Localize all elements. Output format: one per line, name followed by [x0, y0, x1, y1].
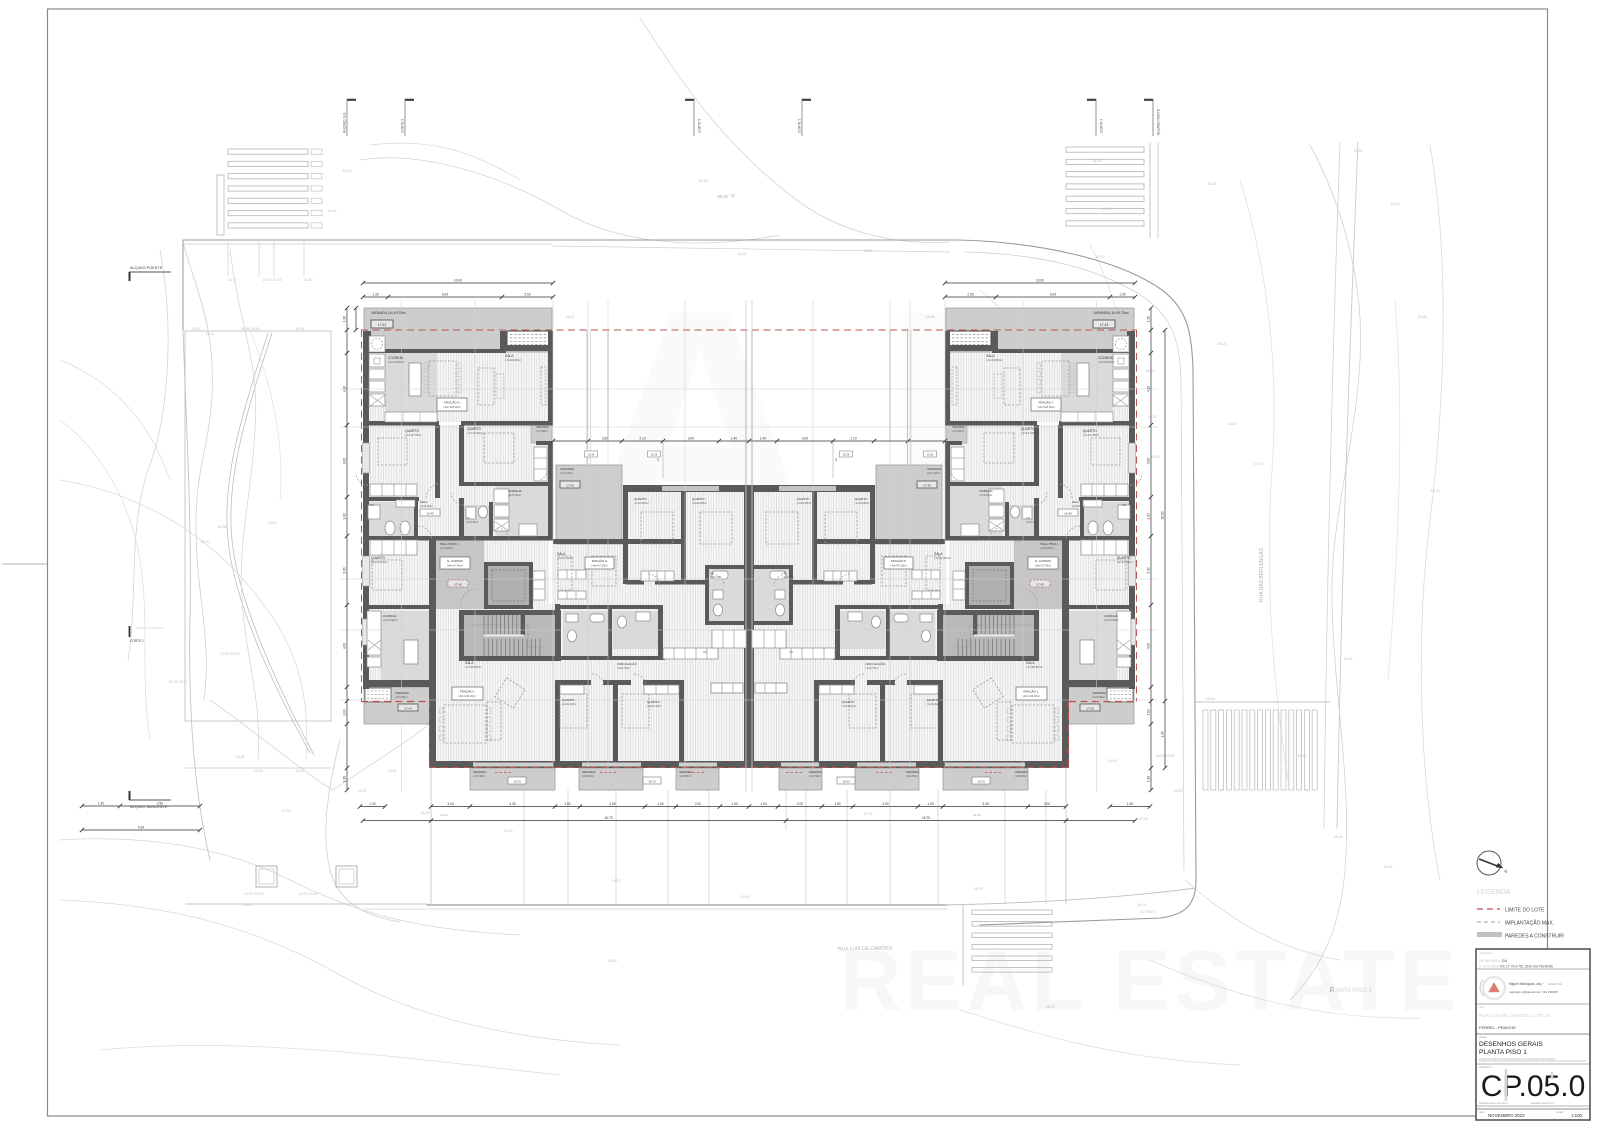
svg-text:18.77: 18.77 [228, 278, 237, 282]
svg-text:17.43: 17.43 [404, 707, 412, 711]
svg-text:19.36: 19.36 [254, 769, 263, 773]
svg-text:18.39: 18.39 [699, 179, 708, 183]
svg-text:18.70: 18.70 [304, 278, 313, 282]
svg-text:18141 OA: 18141 OA [1548, 982, 1563, 986]
svg-text:| Abr=27.96m²: | Abr=27.96m² [1035, 564, 1051, 568]
svg-text:μ9.74: μ9.74 [1137, 903, 1146, 907]
svg-text:18.14: 18.14 [1391, 202, 1400, 206]
svg-text:18.70: 18.70 [343, 169, 352, 173]
svg-text:| A=4.95m²: | A=4.95m² [582, 775, 594, 778]
svg-text:CP.05.0: CP.05.0 [1481, 1070, 1586, 1103]
svg-text:| A=6.95m²: | A=6.95m² [1092, 695, 1105, 699]
svg-text:2.50: 2.50 [524, 292, 530, 296]
svg-text:18.67: 18.67 [566, 315, 575, 319]
svg-text:2.50: 2.50 [967, 292, 973, 296]
svg-text:19.27 19.24: 19.27 19.24 [245, 892, 264, 896]
svg-text:FRAÇÃO J: FRAÇÃO J [1039, 400, 1054, 405]
svg-text:1.50: 1.50 [1127, 802, 1133, 806]
svg-text:| Abr=149.90m²: | Abr=149.90m² [1022, 694, 1040, 698]
svg-text:I.S.: I.S. [782, 571, 786, 575]
svg-text:CORTE 4: CORTE 4 [1100, 119, 1104, 133]
svg-text:19.19: 19.19 [1254, 462, 1263, 466]
svg-text:2.60: 2.60 [609, 802, 615, 806]
svg-text:18.76: 18.76 [974, 887, 983, 891]
svg-text:| A=6.95m²: | A=6.95m² [395, 695, 408, 699]
svg-text:| Abr=97.35m²: | Abr=97.35m² [591, 564, 607, 568]
svg-text:18.96 18.98: 18.96 18.98 [241, 327, 260, 331]
svg-text:REAL ESTATE: REAL ESTATE [840, 934, 1460, 1029]
svg-text:18.94: 18.94 [1384, 865, 1393, 869]
svg-text:18.30: 18.30 [1096, 255, 1105, 259]
svg-text:| A=20.05m²: | A=20.05m² [692, 501, 707, 505]
svg-text:CIRCULAÇÃO: CIRCULAÇÃO [617, 661, 637, 666]
svg-text:PAREDES A CONSTRUIR: PAREDES A CONSTRUIR [1505, 934, 1564, 940]
svg-text:QUARTO: QUARTO [842, 700, 855, 704]
svg-text:| A=3.30m²: | A=3.30m² [1026, 521, 1038, 524]
svg-text:1.30: 1.30 [98, 801, 104, 805]
svg-text:19.00: 19.00 [268, 521, 277, 525]
svg-text:1.30: 1.30 [1146, 776, 1150, 782]
svg-text:FRAÇÃO H: FRAÇÃO H [592, 558, 608, 563]
svg-text:18.20: 18.20 [1228, 422, 1237, 426]
svg-text:2.00: 2.00 [695, 802, 701, 806]
svg-text:18.56: 18.56 [1206, 697, 1215, 701]
svg-text:| A=24.90m²: | A=24.90m² [986, 358, 1002, 362]
svg-text:3.00: 3.00 [342, 458, 346, 464]
svg-text:CIRCULAÇÃO: CIRCULAÇÃO [865, 661, 885, 666]
svg-text:LEGENDA: LEGENDA [1477, 889, 1511, 896]
svg-text:1.40: 1.40 [760, 436, 766, 440]
svg-text:| Abr=27.96m²: | Abr=27.96m² [447, 564, 463, 568]
svg-text:QUARTO: QUARTO [634, 497, 647, 501]
svg-text:6.00: 6.00 [442, 292, 448, 296]
svg-text:5.30: 5.30 [138, 825, 144, 829]
svg-text:QUARTO: QUARTO [692, 497, 705, 501]
svg-text:| A=11.60m²: | A=11.60m² [562, 702, 576, 706]
svg-text:10.00: 10.00 [454, 278, 462, 282]
svg-text:17.43: 17.43 [1086, 707, 1094, 711]
svg-text:| A=12.10m²: | A=12.10m² [647, 704, 662, 708]
svg-text:16.75: 16.75 [605, 816, 613, 820]
svg-text:| A=24.90m²: | A=24.90m² [505, 358, 521, 362]
svg-text:LIMITE DO LOTE: LIMITE DO LOTE [1505, 908, 1545, 914]
svg-text:3.30: 3.30 [342, 567, 346, 573]
svg-text:18.44: 18.44 [1334, 835, 1343, 839]
svg-text:DA: DA [1502, 959, 1508, 963]
svg-text:VARANDA: VARANDA [582, 770, 595, 774]
svg-text:CORTE 3: CORTE 3 [798, 119, 802, 133]
svg-text:| A=9.00m²: | A=9.00m² [1040, 546, 1054, 550]
svg-text:3.60: 3.60 [602, 436, 608, 440]
svg-text:18.26: 18.26 [1151, 455, 1160, 459]
svg-text:18.36: 18.36 [1344, 657, 1353, 661]
svg-text:18.75 18.74: 18.75 18.74 [263, 278, 282, 282]
svg-text:| Abr=149.90m²: | Abr=149.90m² [458, 694, 476, 698]
svg-text:6.00: 6.00 [1050, 292, 1056, 296]
svg-text:18.88: 18.88 [926, 315, 935, 319]
svg-text:3.00: 3.00 [1146, 458, 1150, 464]
svg-text:E. COMUM: E. COMUM [1035, 559, 1051, 563]
svg-text:RUA DAS BERLENGAS: RUA DAS BERLENGAS [1259, 547, 1265, 602]
svg-text:VARANDA: VARANDA [809, 770, 822, 774]
svg-text:complementar o desenho nº: complementar o desenho nº [1479, 1101, 1509, 1105]
svg-text:3.00: 3.00 [688, 436, 694, 440]
svg-text:17.43: 17.43 [1100, 323, 1109, 327]
svg-text:3.00: 3.00 [1044, 802, 1050, 806]
svg-text:| A=5.95m²: | A=5.95m² [1015, 775, 1027, 778]
svg-text:obra: obra [1479, 1005, 1485, 1009]
svg-text:VARANDA: VARANDA [536, 425, 549, 429]
svg-text:18.55: 18.55 [1298, 754, 1307, 758]
svg-text:.99: .99 [834, 458, 838, 462]
svg-text:19.18: 19.18 [864, 812, 873, 816]
svg-text:3.35: 3.35 [509, 802, 515, 806]
svg-text:| A=3.55m²: | A=3.55m² [809, 775, 821, 778]
svg-text:1.10: 1.10 [342, 709, 346, 715]
svg-text:VARANDA | A=19.70m²: VARANDA | A=19.70m² [371, 311, 407, 315]
svg-text:18.03: 18.03 [1046, 1005, 1055, 1009]
svg-text:| A=9.75m²: | A=9.75m² [617, 666, 630, 670]
svg-text:| A=7.20m²: | A=7.20m² [560, 471, 573, 475]
svg-text:18.04: 18.04 [1208, 182, 1217, 186]
svg-text:1.50: 1.50 [834, 802, 840, 806]
svg-text:| Abr=126.90m²: | Abr=126.90m² [443, 405, 461, 409]
svg-text:1.30: 1.30 [1119, 292, 1125, 296]
svg-text:| Abr=97.35m²: | Abr=97.35m² [890, 564, 906, 568]
svg-text:2.50: 2.50 [157, 801, 163, 805]
svg-text:COZINHA: COZINHA [1104, 614, 1118, 618]
svg-text:| A=4.80m²: | A=4.80m² [536, 430, 548, 433]
svg-text:19.16: 19.16 [440, 813, 448, 817]
svg-text:RUA LUIS DE CAMÕES, LOTE 1A: RUA LUIS DE CAMÕES, LOTE 1A [1479, 1012, 1551, 1018]
svg-text:19.02: 19.02 [612, 879, 621, 883]
svg-text:19.39: 19.39 [388, 769, 397, 773]
svg-text:1.50: 1.50 [564, 802, 570, 806]
svg-text:18.28: 18.28 [927, 453, 934, 457]
svg-text:18.19: 18.19 [1093, 159, 1102, 163]
svg-text:ALÇADO POENTE: ALÇADO POENTE [130, 266, 163, 270]
svg-text:17.43: 17.43 [923, 484, 931, 488]
svg-text:1.50: 1.50 [657, 802, 663, 806]
svg-text:ALÇADO SUL: ALÇADO SUL [343, 112, 347, 133]
svg-text:1.30: 1.30 [1146, 316, 1150, 322]
svg-text:I.S.: I.S. [789, 650, 793, 654]
svg-text:| A=10.60m²: | A=10.60m² [1098, 360, 1114, 364]
svg-text:Miguel Malaquias, arq.º: Miguel Malaquias, arq.º [1509, 982, 1544, 986]
svg-text:18.32: 18.32 [296, 769, 305, 773]
svg-text:18.23: 18.23 [244, 903, 253, 907]
svg-text:HALL: HALL [1072, 500, 1080, 504]
svg-text:10.00: 10.00 [1160, 511, 1164, 519]
svg-text:QUARTO: QUARTO [855, 497, 868, 501]
svg-text:19.04: 19.04 [328, 209, 337, 213]
svg-text:| A=11.60m²: | A=11.60m² [927, 702, 941, 706]
svg-text:1.30: 1.30 [342, 316, 346, 322]
svg-text:18.45: 18.45 [1064, 512, 1072, 516]
svg-text:1.50: 1.50 [760, 802, 766, 806]
svg-text:18.28: 18.28 [651, 453, 658, 457]
svg-text:FRAÇÃO K: FRAÇÃO K [891, 558, 906, 563]
svg-text:I.S.: I.S. [703, 650, 707, 654]
svg-text:ALÇADO NASCENTE: ALÇADO NASCENTE [130, 805, 168, 809]
svg-text:1.50: 1.50 [731, 802, 737, 806]
svg-text:19.00: 19.00 [608, 959, 617, 963]
svg-text:1.30: 1.30 [1160, 731, 1164, 737]
svg-text:4.00: 4.00 [1146, 643, 1150, 649]
svg-text:COZINHA: COZINHA [383, 614, 397, 618]
svg-text:VARANDA: VARANDA [560, 467, 574, 471]
svg-text:19.26: 19.26 [282, 809, 291, 813]
svg-text:| A=6.60m²: | A=6.60m² [508, 493, 521, 497]
svg-text:| A=12.20m²: | A=12.20m² [467, 431, 483, 435]
svg-text:RUA LUIS DE CAMÕES: RUA LUIS DE CAMÕES [838, 945, 893, 953]
svg-text:18.20: 18.20 [1148, 415, 1157, 419]
svg-text:19.01: 19.01 [206, 332, 215, 336]
svg-text:| A=13.90m²: | A=13.90m² [1104, 618, 1119, 622]
svg-text:17.43: 17.43 [454, 583, 462, 587]
svg-text:FERREL - PENICHE: FERREL - PENICHE [1479, 1025, 1516, 1030]
svg-text:OS, LT 78 N.º50, 2520-202 PENI: OS, LT 78 N.º50, 2520-202 PENICHE [1500, 965, 1553, 969]
svg-text:18.53: 18.53 [864, 249, 873, 253]
svg-text:| A=12.10m²: | A=12.10m² [842, 704, 857, 708]
svg-text:18.45: 18.45 [426, 512, 434, 516]
svg-text:2.60: 2.60 [882, 802, 888, 806]
svg-text:escala: escala [1556, 1111, 1564, 1114]
svg-text:18.65: 18.65 [1108, 759, 1117, 763]
svg-text:18.87: 18.87 [1174, 789, 1183, 793]
svg-text:18.33: 18.33 [513, 780, 521, 784]
svg-text:3.00: 3.00 [447, 802, 453, 806]
svg-text:VARANDA: VARANDA [473, 770, 486, 774]
svg-text:FRAÇÃO G: FRAÇÃO G [444, 400, 460, 405]
svg-text:| A=20.05m²: | A=20.05m² [797, 501, 812, 505]
svg-text:COZINHA: COZINHA [979, 489, 993, 493]
svg-text:| A=4.70m²: | A=4.70m² [782, 576, 794, 579]
svg-text:data: data [1479, 1111, 1484, 1114]
svg-text:FRAÇÃO L: FRAÇÃO L [1023, 689, 1038, 694]
svg-text:HALL: HALL [420, 500, 428, 504]
svg-text:mgmarq.m@gmail.com | 91 2104: mgmarq.m@gmail.com | 91 210457 [1509, 990, 1558, 994]
svg-text:19.26 19.27: 19.26 19.27 [169, 680, 188, 684]
svg-text:| A=10.60m²: | A=10.60m² [388, 360, 404, 364]
svg-text:| A=3.55m²: | A=3.55m² [679, 775, 691, 778]
svg-text:VARANDA: VARANDA [1015, 770, 1028, 774]
svg-text:substitui o desenho nº: substitui o desenho nº [1531, 1101, 1555, 1105]
svg-text:18.28: 18.28 [588, 453, 595, 457]
svg-text:| A=35.90m²: | A=35.90m² [1026, 665, 1042, 669]
svg-text:QUARTO: QUARTO [647, 700, 660, 704]
svg-text:| A=14.95m²: | A=14.95m² [634, 501, 649, 505]
svg-text:1.10: 1.10 [1146, 709, 1150, 715]
svg-text:| A=12.20m²: | A=12.20m² [1021, 431, 1037, 435]
svg-text:18.33: 18.33 [648, 780, 656, 784]
svg-text:requerente: requerente [1479, 951, 1492, 955]
svg-text:CORTE 2: CORTE 2 [401, 119, 405, 133]
svg-text:QUARTO: QUARTO [797, 497, 810, 501]
svg-text:18.28: 18.28 [843, 453, 850, 457]
svg-text:ALÇADO NORTE: ALÇADO NORTE [1157, 108, 1161, 135]
svg-text:projeto: projeto [1479, 1035, 1487, 1039]
svg-text:IMOBILIÁRIA, L: IMOBILIÁRIA, L [1479, 959, 1505, 963]
svg-text:CAMINHA PRÉDIOS | COLUNA ÁGUA: CAMINHA PRÉDIOS | COLUNA ÁGUA Q | TOUR M… [1479, 1058, 1555, 1061]
svg-text:| A=7.20m²: | A=7.20m² [927, 471, 940, 475]
svg-text:2.00: 2.00 [797, 802, 803, 806]
svg-text:I.S.: I.S. [1122, 503, 1126, 507]
svg-text:| A=6.20m²: | A=6.20m² [420, 504, 433, 508]
svg-text:VARANDA: VARANDA [679, 770, 692, 774]
svg-text:| A=14.95m²: | A=14.95m² [855, 501, 870, 505]
svg-text:19.19: 19.19 [1431, 489, 1440, 493]
svg-text:| A=12.75m²: | A=12.75m² [1083, 433, 1099, 437]
svg-text:VARANDA: VARANDA [906, 770, 919, 774]
svg-text:CORTE 1: CORTE 1 [130, 639, 144, 643]
svg-text:19.02: 19.02 [358, 789, 367, 793]
svg-text:17.43: 17.43 [378, 323, 387, 327]
svg-text:18.14: 18.14 [1102, 207, 1111, 211]
svg-text:19.10: 19.10 [504, 829, 513, 833]
svg-text:| A=5.95m²: | A=5.95m² [473, 775, 485, 778]
svg-text:18.16: 18.16 [1354, 149, 1363, 153]
svg-text:QUARTO: QUARTO [562, 698, 575, 702]
svg-text:I.S.: I.S. [1026, 516, 1030, 520]
svg-text:LANTA PISO 1: LANTA PISO 1 [1332, 988, 1372, 994]
svg-text:| A=12.00m²: | A=12.00m² [1117, 560, 1133, 564]
svg-text:desenho nº: desenho nº [1479, 1065, 1492, 1069]
svg-text:| A=6.60m²: | A=6.60m² [979, 493, 992, 497]
svg-text:I.S.: I.S. [370, 503, 374, 507]
svg-text:| A=9.75m²: | A=9.75m² [865, 666, 878, 670]
svg-text:16.75: 16.75 [922, 816, 930, 820]
svg-text:1.50: 1.50 [927, 802, 933, 806]
svg-text:CORTE 5: CORTE 5 [698, 119, 702, 133]
svg-text:1.90: 1.90 [1146, 513, 1150, 519]
svg-text:17.43: 17.43 [1036, 583, 1044, 587]
svg-text:1.30: 1.30 [369, 802, 375, 806]
svg-text:| A=12.75m²: | A=12.75m² [405, 433, 421, 437]
svg-text:4.10: 4.10 [342, 386, 346, 392]
svg-text:18.36: 18.36 [218, 525, 227, 529]
svg-text:18.33: 18.33 [842, 780, 850, 784]
svg-text:| A=4.95m²: | A=4.95m² [906, 775, 918, 778]
svg-text:VARANDA | A=19.70m²: VARANDA | A=19.70m² [1093, 311, 1129, 315]
svg-text:17.43: 17.43 [566, 484, 574, 488]
svg-text:| A=27.00m²: | A=27.00m² [557, 556, 573, 560]
svg-text:E. COMUM: E. COMUM [447, 559, 463, 563]
svg-text:| A=3.30m²: | A=3.30m² [466, 521, 478, 524]
svg-text:VARANDA: VARANDA [952, 425, 965, 429]
svg-text:COZINHA: COZINHA [508, 489, 522, 493]
svg-text:11.7/98.74: 11.7/98.74 [1140, 910, 1157, 914]
svg-text:10.00: 10.00 [1036, 278, 1044, 282]
svg-text:4.10: 4.10 [1146, 386, 1150, 392]
svg-text:| A=12.00m²: | A=12.00m² [371, 560, 387, 564]
svg-text:2.10: 2.10 [850, 436, 856, 440]
svg-text:VARANDA: VARANDA [1092, 691, 1106, 695]
svg-text:DESENHOS GERAIS: DESENHOS GERAIS [1479, 1041, 1543, 1048]
svg-text:1.40: 1.40 [731, 436, 737, 440]
svg-text:10.26 19.21: 10.26 19.21 [221, 652, 240, 656]
svg-text:| A=27.00m²: | A=27.00m² [934, 556, 950, 560]
svg-text:| Abr=126.90m²: | Abr=126.90m² [1037, 405, 1055, 409]
svg-text:3.35: 3.35 [982, 802, 988, 806]
svg-text:18.19: 18.19 [1146, 369, 1155, 373]
svg-text:18.98: 18.98 [1139, 817, 1148, 821]
svg-text:| A=35.90m²: | A=35.90m² [465, 665, 481, 669]
svg-text:1.30: 1.30 [372, 292, 378, 296]
svg-text:IMPLANTAÇÃO MÁX.: IMPLANTAÇÃO MÁX. [1505, 920, 1554, 927]
svg-text:18.94: 18.94 [296, 327, 305, 331]
svg-text:18.70: 18.70 [201, 540, 210, 544]
svg-text:VARANDA: VARANDA [927, 467, 941, 471]
svg-text:19.00: 19.00 [741, 895, 750, 899]
svg-text:2.10: 2.10 [639, 436, 645, 440]
svg-text:| A=6.20m²: | A=6.20m² [1072, 504, 1085, 508]
svg-text:.99: .99 [656, 458, 660, 462]
svg-text:NOVEMBRO 2023: NOVEMBRO 2023 [1488, 1113, 1525, 1118]
svg-text:| A=13.90m²: | A=13.90m² [383, 618, 398, 622]
svg-text:3.30: 3.30 [1146, 567, 1150, 573]
svg-text:| A=4.80m²: | A=4.80m² [952, 430, 964, 433]
svg-text:RUA "A": RUA "A" [718, 194, 737, 201]
svg-text:18.60: 18.60 [738, 252, 747, 256]
svg-text:19.38: 19.38 [236, 755, 245, 759]
svg-text:| A=9.00m²: | A=9.00m² [440, 546, 454, 550]
svg-text:I.S.: I.S. [466, 516, 470, 520]
svg-text:1:100: 1:100 [1571, 1113, 1583, 1118]
svg-text:18.88: 18.88 [1418, 315, 1427, 319]
svg-text:18.38: 18.38 [421, 811, 430, 815]
svg-text:1.90: 1.90 [342, 513, 346, 519]
svg-text:| A=4.70m²: | A=4.70m² [710, 576, 722, 579]
svg-text:I.S.: I.S. [710, 571, 714, 575]
svg-text:19.21 19.20: 19.21 19.20 [299, 892, 318, 896]
svg-text:18.25: 18.25 [1218, 342, 1227, 346]
svg-text:18.98: 18.98 [973, 813, 981, 817]
svg-text:PLANTA PISO 1: PLANTA PISO 1 [1479, 1049, 1527, 1056]
svg-text:1.30: 1.30 [342, 776, 346, 782]
svg-text:4.00: 4.00 [342, 643, 346, 649]
svg-text:3.00: 3.00 [802, 436, 808, 440]
svg-text:18.33: 18.33 [977, 780, 985, 784]
svg-text:18.97: 18.97 [192, 327, 201, 331]
svg-text:QUARTO: QUARTO [927, 698, 940, 702]
svg-text:R. DOS ARMA: R. DOS ARMA [1479, 965, 1501, 969]
svg-text:VARANDA: VARANDA [395, 691, 409, 695]
svg-text:FRAÇÃO I: FRAÇÃO I [460, 689, 474, 694]
